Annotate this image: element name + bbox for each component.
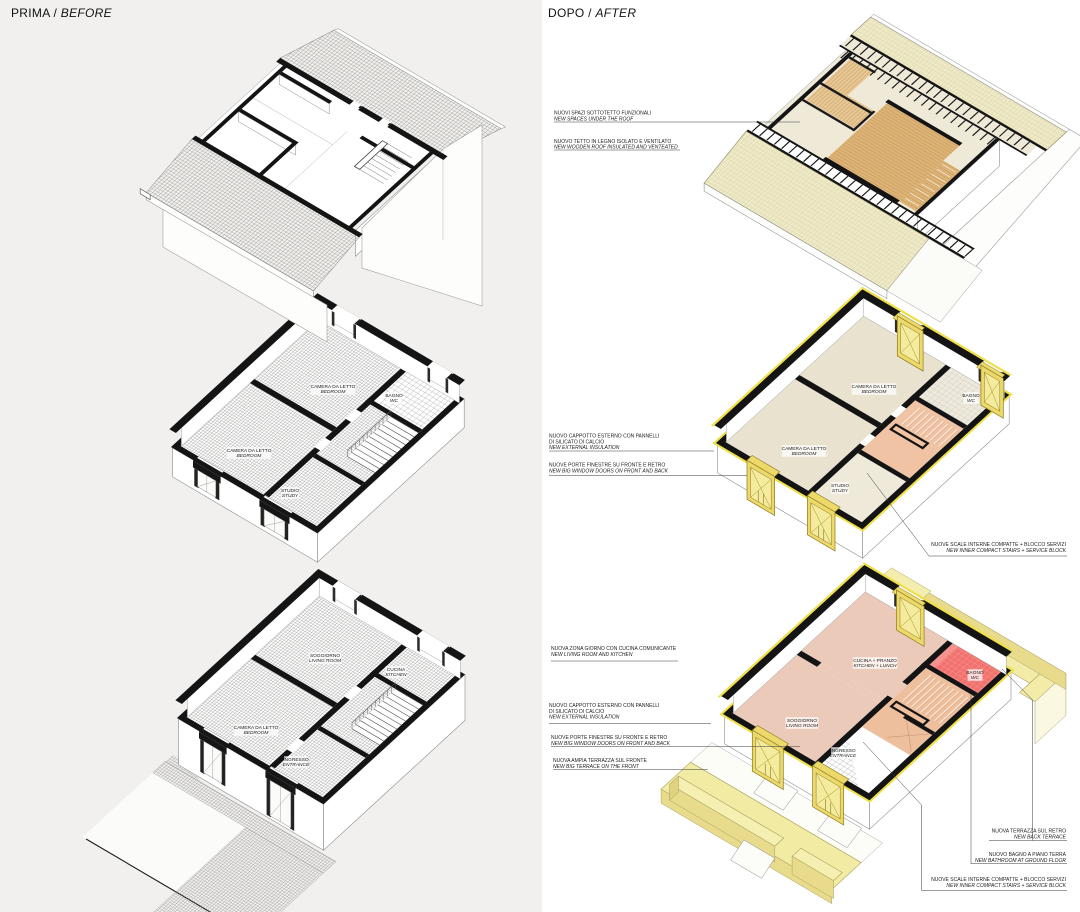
svg-text:NUOVE SCALE INTERNE COMPATTE +: NUOVE SCALE INTERNE COMPATTE + BLOCCO SE… xyxy=(931,877,1067,889)
svg-text:CUCINA + PRANZOKITCHEN + LUNCH: CUCINA + PRANZOKITCHEN + LUNCH xyxy=(853,658,897,669)
svg-text:NUOVE PORTE FINESTRE SU FRONTE: NUOVE PORTE FINESTRE SU FRONTE E RETRONE… xyxy=(549,463,669,475)
svg-text:DOPO / AFTER: DOPO / AFTER xyxy=(548,6,636,20)
svg-text:NUOVE SCALE INTERNE COMPATTE +: NUOVE SCALE INTERNE COMPATTE + BLOCCO SE… xyxy=(931,542,1067,554)
svg-text:STUDIOSTUDY: STUDIOSTUDY xyxy=(281,488,299,499)
svg-text:INGRESSOENTRANCE: INGRESSOENTRANCE xyxy=(283,757,310,768)
svg-text:NUOVO BAGNO A PIANO TERRANEW B: NUOVO BAGNO A PIANO TERRANEW BATHROOM AT… xyxy=(975,852,1067,864)
svg-text:SOGGIORNOLIVING ROOM: SOGGIORNOLIVING ROOM xyxy=(786,718,818,729)
svg-text:NUOVE PORTE FINESTRE SU FRONTE: NUOVE PORTE FINESTRE SU FRONTE E RETRONE… xyxy=(551,735,671,747)
svg-text:STUDIOSTUDY: STUDIOSTUDY xyxy=(831,483,849,494)
svg-text:CUCINAKITCHEN: CUCINAKITCHEN xyxy=(385,667,407,678)
svg-text:NUOVO TETTO IN LEGNO ISOLATO E: NUOVO TETTO IN LEGNO ISOLATO E VENTILATO… xyxy=(554,139,678,151)
svg-text:SOGGIORNOLIVING ROOM: SOGGIORNOLIVING ROOM xyxy=(309,653,341,664)
svg-text:INGRESSOENTRANCE: INGRESSOENTRANCE xyxy=(830,748,857,759)
svg-text:NUOVA AMPIA TERRAZZA SUL FRONT: NUOVA AMPIA TERRAZZA SUL FRONTENEW BIG T… xyxy=(553,758,647,770)
svg-text:PRIMA / BEFORE: PRIMA / BEFORE xyxy=(11,6,113,20)
